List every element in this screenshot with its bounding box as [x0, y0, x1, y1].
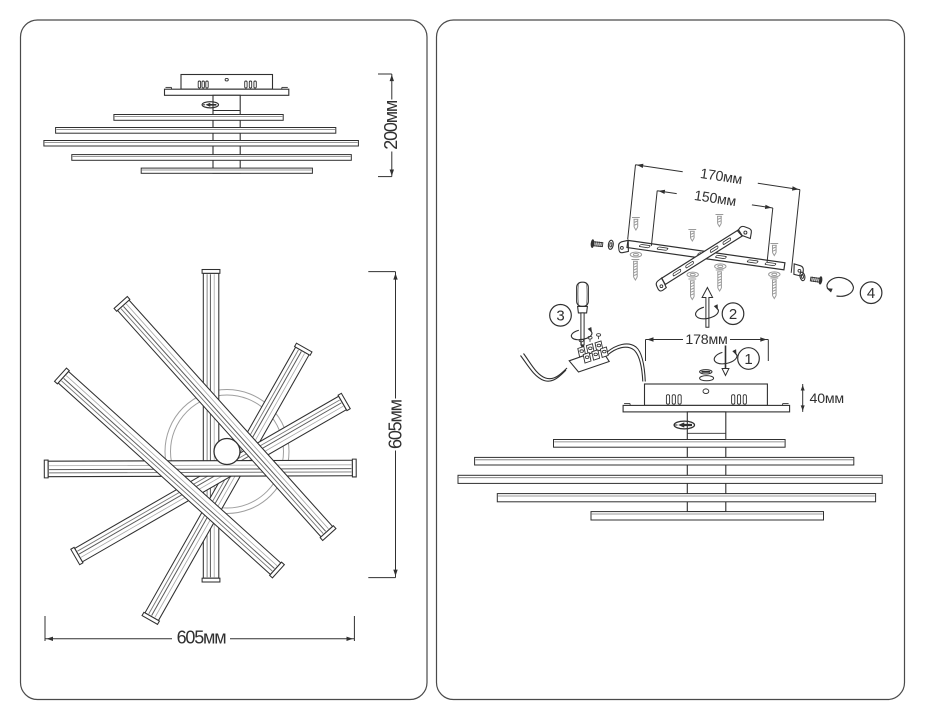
svg-text:4: 4: [867, 285, 875, 302]
svg-text:200мм: 200мм: [381, 100, 401, 150]
svg-text:178мм: 178мм: [685, 332, 727, 348]
svg-text:40мм: 40мм: [810, 391, 845, 407]
svg-text:605мм: 605мм: [177, 628, 227, 648]
svg-text:605мм: 605мм: [385, 399, 405, 449]
svg-text:1: 1: [744, 351, 752, 368]
svg-text:3: 3: [556, 308, 564, 325]
svg-text:2: 2: [729, 306, 737, 323]
